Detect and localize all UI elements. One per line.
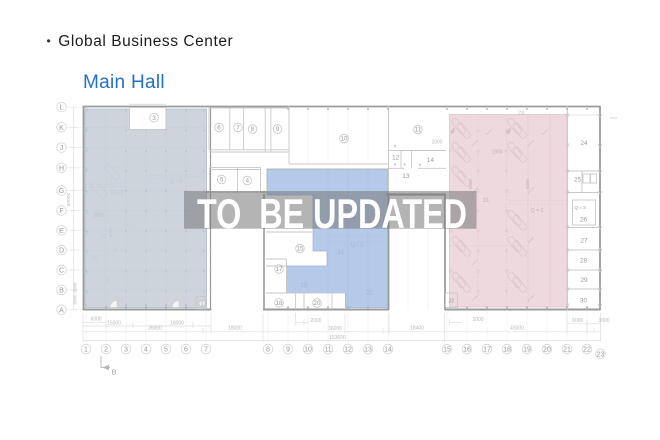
svg-text:12: 12 [344,347,352,354]
svg-text:6000: 6000 [468,178,473,189]
svg-text:17: 17 [276,266,283,273]
svg-text:21: 21 [563,347,571,354]
svg-text:7: 7 [204,347,208,354]
svg-text:19: 19 [523,347,531,354]
svg-text:14: 14 [384,347,392,354]
svg-text:12: 12 [392,155,400,162]
svg-text:6000: 6000 [108,226,113,237]
svg-text:36000: 36000 [328,326,342,332]
svg-text:A: A [59,307,64,314]
svg-text:23: 23 [597,351,605,358]
svg-text:15: 15 [443,347,451,354]
svg-text:45000: 45000 [510,326,524,332]
svg-text:8: 8 [266,347,270,354]
svg-text:2000: 2000 [310,318,321,324]
svg-text:TO BE UPDATED: TO BE UPDATED [197,190,467,237]
svg-text:15000: 15000 [107,320,121,326]
svg-text:18: 18 [276,300,283,307]
svg-text:H: H [59,165,64,172]
svg-text:6: 6 [217,125,221,132]
svg-text:11: 11 [324,347,331,354]
svg-text:11: 11 [415,127,422,134]
svg-text:16: 16 [463,347,471,354]
svg-text:1: 1 [201,302,204,308]
svg-text:1000: 1000 [472,317,483,323]
svg-text:60000: 60000 [66,193,72,207]
svg-text:2: 2 [125,210,128,216]
svg-text:6000: 6000 [90,316,101,322]
svg-text:Q = 3: Q = 3 [574,205,586,210]
svg-text:21: 21 [338,250,345,256]
svg-text:J: J [60,145,64,152]
svg-text:4: 4 [246,178,250,185]
svg-text:30: 30 [580,298,588,305]
svg-text:14: 14 [427,157,435,164]
svg-text:3: 3 [152,115,156,122]
svg-text:3000: 3000 [598,318,609,324]
svg-text:19: 19 [301,283,308,289]
svg-text:K: K [59,125,64,132]
svg-text:32: 32 [448,299,454,305]
svg-text:5: 5 [220,177,224,184]
svg-text:17: 17 [483,347,491,354]
svg-text:10: 10 [304,347,312,354]
svg-text:9: 9 [276,126,280,133]
svg-text:B: B [59,287,64,294]
svg-text:6000: 6000 [525,178,530,189]
svg-text:13: 13 [402,173,410,180]
svg-text:13: 13 [364,347,372,354]
svg-text:15: 15 [297,246,304,253]
svg-text:23: 23 [518,111,524,117]
svg-text:27: 27 [580,238,588,245]
svg-text:C: C [59,268,64,275]
svg-text:1900: 1900 [491,150,502,156]
svg-text:31: 31 [483,198,490,204]
svg-text:6000: 6000 [73,282,78,293]
svg-text:L: L [60,105,64,112]
svg-text:B: B [111,368,116,377]
svg-text:F: F [59,208,63,215]
svg-text:G: G [59,188,64,195]
svg-text:20: 20 [543,347,551,354]
svg-text:1000: 1000 [431,140,442,146]
svg-text:28: 28 [580,258,588,265]
svg-text:6000: 6000 [73,294,78,305]
svg-text:20: 20 [314,300,321,307]
svg-text:3: 3 [124,347,128,354]
svg-text:29: 29 [580,277,588,284]
svg-text:18400: 18400 [410,326,424,332]
svg-text:5: 5 [164,347,168,354]
svg-text:25: 25 [574,177,582,184]
svg-text:6000: 6000 [572,318,583,324]
svg-text:6: 6 [184,347,188,354]
svg-text:36000: 36000 [148,326,162,332]
svg-text:1: 1 [84,347,88,354]
svg-text:22: 22 [366,291,373,297]
svg-text:E: E [59,228,64,235]
svg-text:2: 2 [104,347,108,354]
svg-text:18000: 18000 [228,326,242,332]
svg-text:153600: 153600 [329,335,346,341]
svg-text:2700: 2700 [93,213,104,219]
svg-text:Q + 3: Q + 3 [111,190,124,196]
svg-text:18000: 18000 [170,320,184,326]
svg-text:26: 26 [580,217,588,224]
svg-text:4: 4 [144,347,148,354]
svg-text:22: 22 [583,347,591,354]
svg-text:24: 24 [580,140,588,147]
svg-text:8: 8 [251,126,255,133]
svg-text:Q = 3: Q = 3 [531,208,544,214]
svg-text:10: 10 [341,136,348,143]
svg-text:18: 18 [503,347,511,354]
svg-text:D: D [59,248,64,255]
svg-text:Q = 3: Q = 3 [351,243,364,249]
svg-text:7: 7 [236,125,240,132]
svg-text:9: 9 [286,347,290,354]
svg-text:Q + 3: Q + 3 [170,179,183,185]
